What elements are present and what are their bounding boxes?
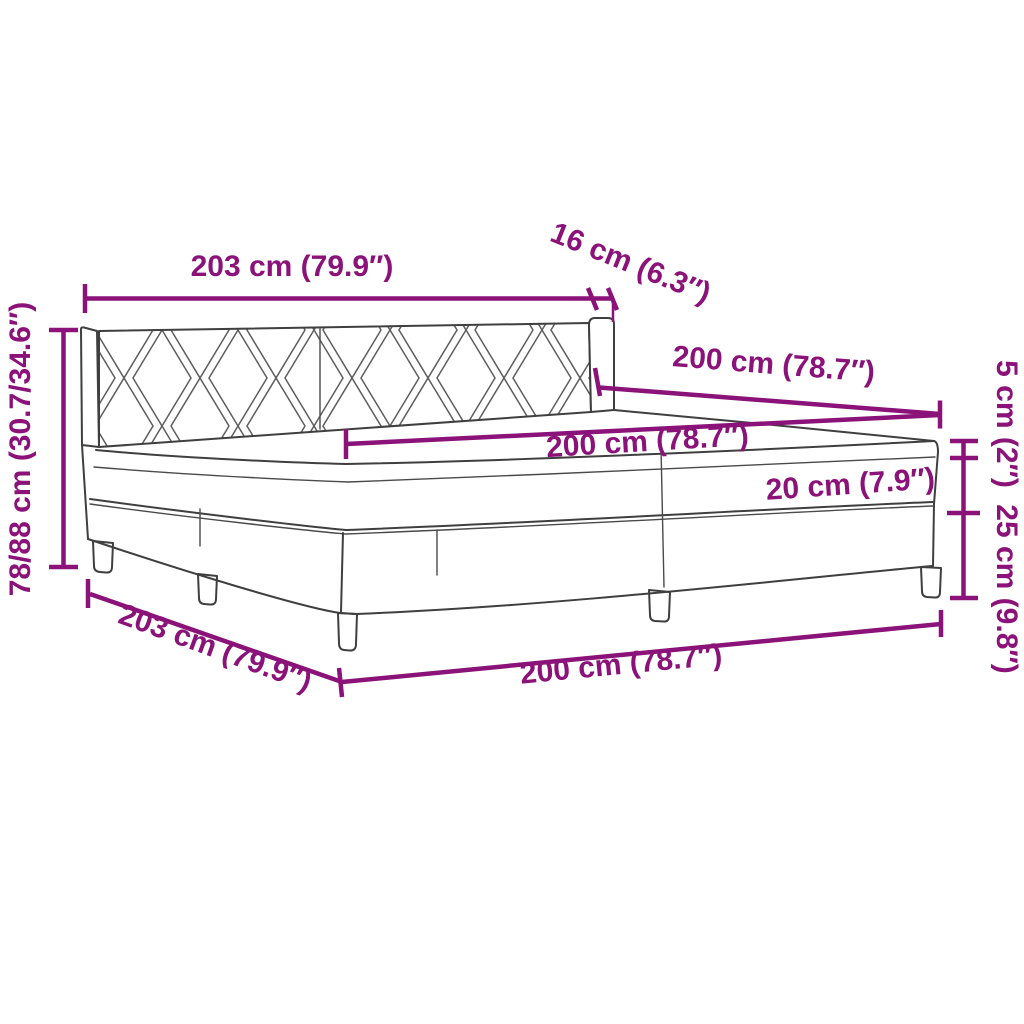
bed-dimensions-illustration: 78/88 cm (30.7/34.6″) 203 cm (79.9″) 16 …: [0, 0, 1024, 1024]
dim-base-length: 200 cm (78.7″): [342, 610, 941, 691]
headboard-depth-label: 16 cm (6.3″): [546, 216, 715, 310]
dim-headboard-width: 203 cm (79.9″): [85, 250, 597, 313]
base-width-label: 203 cm (79.9″): [114, 598, 316, 698]
headboard-left-wing: [81, 327, 99, 447]
dim-total-height: 78/88 cm (30.7/34.6″): [4, 302, 78, 597]
total-height-label: 78/88 cm (30.7/34.6″): [4, 302, 37, 597]
base-length-label: 200 cm (78.7″): [519, 638, 724, 690]
headboard-right-wing: [589, 318, 614, 412]
headboard-width-label: 203 cm (79.9″): [191, 250, 394, 283]
bed-length-upper-label: 200 cm (78.7″): [671, 340, 876, 389]
topper-height-label: 5 cm (2″): [990, 360, 1023, 488]
product-dimension-diagram: 78/88 cm (30.7/34.6″) 203 cm (79.9″) 16 …: [0, 0, 1024, 1024]
box-spring-height-label: 25 cm (9.8″): [990, 504, 1023, 673]
leg: [338, 613, 357, 651]
dim-headboard-depth: 16 cm (6.3″): [546, 216, 715, 322]
leg: [649, 590, 670, 622]
dim-right-heights: 5 cm (2″) 25 cm (9.8″): [947, 360, 1023, 674]
leg: [921, 567, 941, 598]
